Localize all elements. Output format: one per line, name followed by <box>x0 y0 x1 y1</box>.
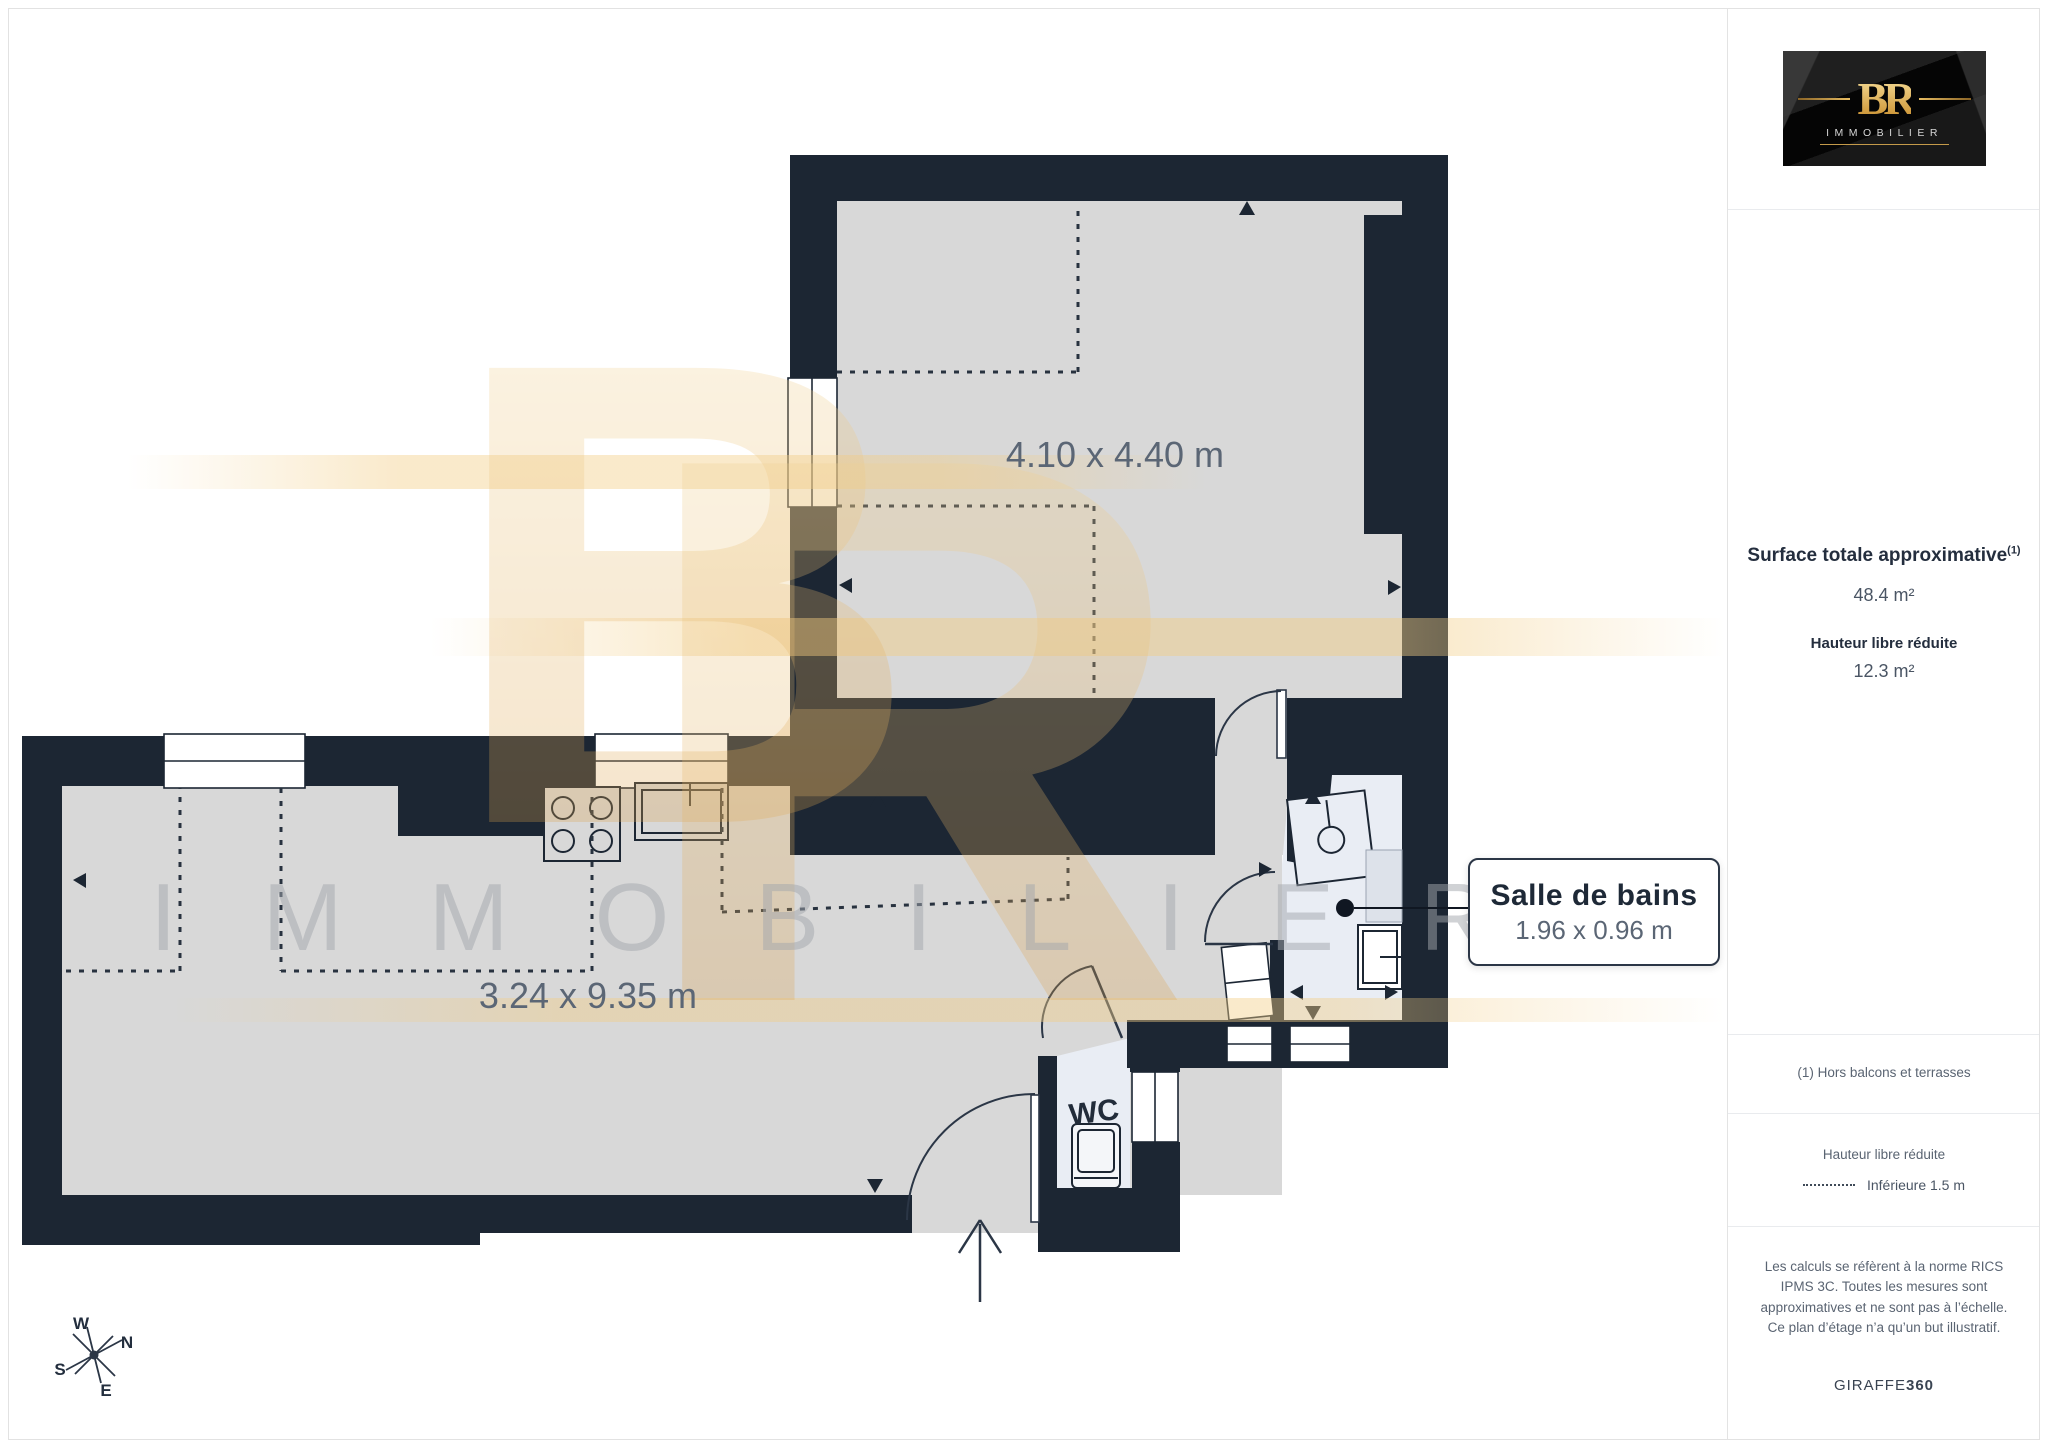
legend-row: Inférieure 1.5 m <box>1728 1177 2040 1193</box>
compass-south-label: S <box>54 1360 65 1379</box>
logo-line-right <box>1919 98 1971 100</box>
dashed-line-icon <box>1803 1184 1855 1186</box>
sidebar-divider <box>1728 1113 2040 1114</box>
bathroom-callout: Salle de bains 1.96 x 0.96 m <box>1468 858 1720 966</box>
reduced-height-value: 12.3 m² <box>1728 661 2040 682</box>
logo-monogram: BR <box>1858 72 1912 125</box>
agency-logo: BR IMMOBILIER <box>1783 51 1986 166</box>
legend-title: Hauteur libre réduite <box>1728 1147 2040 1162</box>
surface-total-value: 48.4 m² <box>1728 585 2040 606</box>
info-sidebar: BR IMMOBILIER Surface totale approximati… <box>1727 9 2040 1440</box>
compass-icon: W N S E <box>54 1314 133 1400</box>
bathroom-callout-title: Salle de bains <box>1490 879 1697 913</box>
window-bath-bottom-2 <box>1290 1026 1350 1062</box>
compass-east-label: E <box>100 1381 111 1400</box>
watermark-immobilier: IMMOBILIER <box>150 864 1575 971</box>
giraffe360-brand: GIRAFFE360 <box>1728 1377 2040 1394</box>
window-bath-bottom-1 <box>1227 1026 1272 1062</box>
window-living-1 <box>164 734 305 788</box>
living-dimensions-label: 3.24 x 9.35 m <box>479 975 697 1016</box>
surface-total-title: Surface totale approximative(1) <box>1728 545 2040 567</box>
wc-label: WC <box>1067 1093 1121 1132</box>
disclaimer-text: Les calculs se réfèrent à la norme RICS … <box>1756 1257 2012 1338</box>
page: B R IMMOBILIER 4.10 x 4.40 m 3.24 x 9.35… <box>0 0 2048 1448</box>
footnote: (1) Hors balcons et terrasses <box>1728 1065 2040 1080</box>
entrance-gap-floor <box>907 1195 1038 1233</box>
logo-line-left <box>1798 98 1850 100</box>
sidebar-divider <box>1728 209 2040 210</box>
legend-item-label: Inférieure 1.5 m <box>1867 1177 1965 1193</box>
bedroom-dimensions-label: 4.10 x 4.40 m <box>1006 434 1224 475</box>
reduced-height-title: Hauteur libre réduite <box>1728 635 2040 652</box>
sidebar-divider <box>1728 1226 2040 1227</box>
sidebar-divider <box>1728 1034 2040 1035</box>
bathroom-callout-dimensions: 1.96 x 0.96 m <box>1515 915 1673 946</box>
surface-superscript: (1) <box>2007 545 2020 557</box>
compass-north-label: N <box>121 1333 133 1352</box>
compass-west-label: W <box>73 1314 90 1333</box>
watermark-monogram-r: R <box>630 295 1193 1166</box>
logo-name: IMMOBILIER <box>1820 127 1949 145</box>
